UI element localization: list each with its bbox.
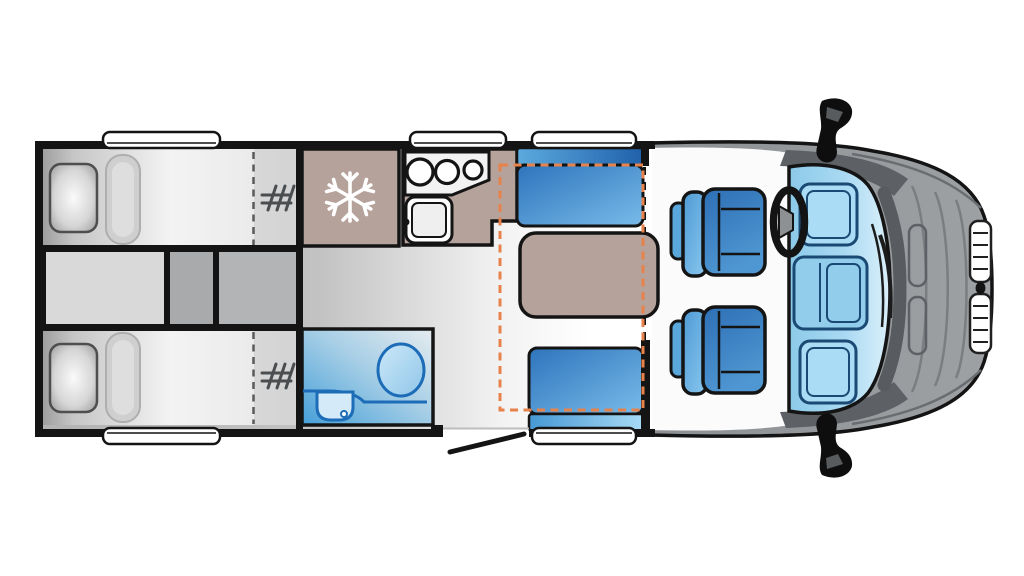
tap-dot — [403, 219, 410, 226]
burner — [436, 161, 459, 184]
window-lounge-bottom — [532, 428, 636, 444]
bench-seat-top — [517, 165, 643, 226]
unit-right — [219, 252, 296, 325]
grille-lower — [970, 294, 991, 353]
window-kitchen — [410, 132, 506, 148]
kitchen-sink — [403, 197, 453, 243]
pillow-top — [50, 164, 97, 232]
center-storage-units — [43, 247, 297, 331]
driver-seat — [671, 189, 765, 276]
passenger-seat — [671, 307, 765, 394]
bench-seat-bottom — [529, 348, 643, 414]
motorhome-floorplan — [0, 0, 1024, 576]
seat-cushion — [703, 307, 765, 393]
pillow-bottom — [50, 344, 97, 412]
door-swing-line — [450, 434, 524, 452]
dinette-table — [520, 233, 658, 317]
floorplan-svg — [0, 0, 1024, 576]
basin-tap-dot — [341, 411, 347, 417]
bolster-top-highlight — [112, 162, 134, 237]
bench-top-backrest — [517, 148, 643, 165]
burner — [464, 161, 482, 179]
burner — [407, 159, 433, 185]
wall-left — [35, 141, 43, 437]
window-bedroom-top — [103, 132, 220, 148]
bolster-bottom-highlight — [112, 340, 134, 415]
fridge-freezer — [302, 149, 399, 246]
window-lounge-top — [532, 132, 636, 148]
window-bedroom-bottom — [103, 428, 220, 444]
wall-bottom-left — [35, 429, 443, 437]
entry-door — [443, 429, 529, 453]
unit-left — [46, 252, 164, 325]
grille-upper — [970, 221, 991, 282]
toilet-icon — [378, 344, 424, 396]
bathroom — [302, 329, 433, 425]
wall-end-cap — [431, 425, 443, 437]
seat-cushion — [703, 189, 765, 275]
washbasin-icon — [317, 392, 353, 420]
living-module — [35, 132, 658, 452]
unit-middle — [170, 252, 213, 325]
badge-dot — [976, 282, 986, 294]
